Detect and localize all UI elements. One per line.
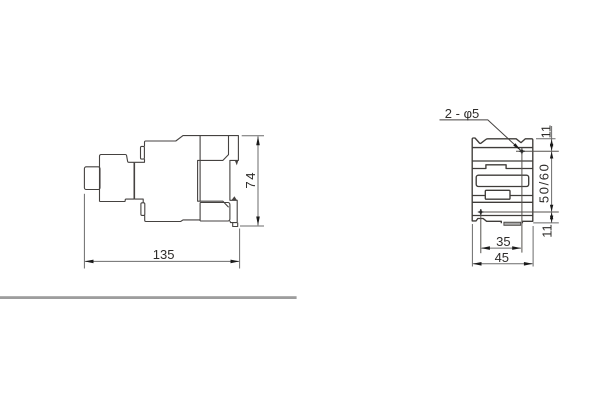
- svg-text:50/60: 50/60: [536, 163, 551, 204]
- svg-text:2 - φ5: 2 - φ5: [445, 106, 479, 121]
- svg-text:11: 11: [538, 125, 553, 139]
- svg-text:45: 45: [495, 250, 509, 265]
- svg-text:135: 135: [153, 247, 175, 262]
- svg-text:11: 11: [539, 224, 554, 238]
- svg-text:35: 35: [496, 234, 510, 249]
- svg-text:74: 74: [243, 171, 258, 189]
